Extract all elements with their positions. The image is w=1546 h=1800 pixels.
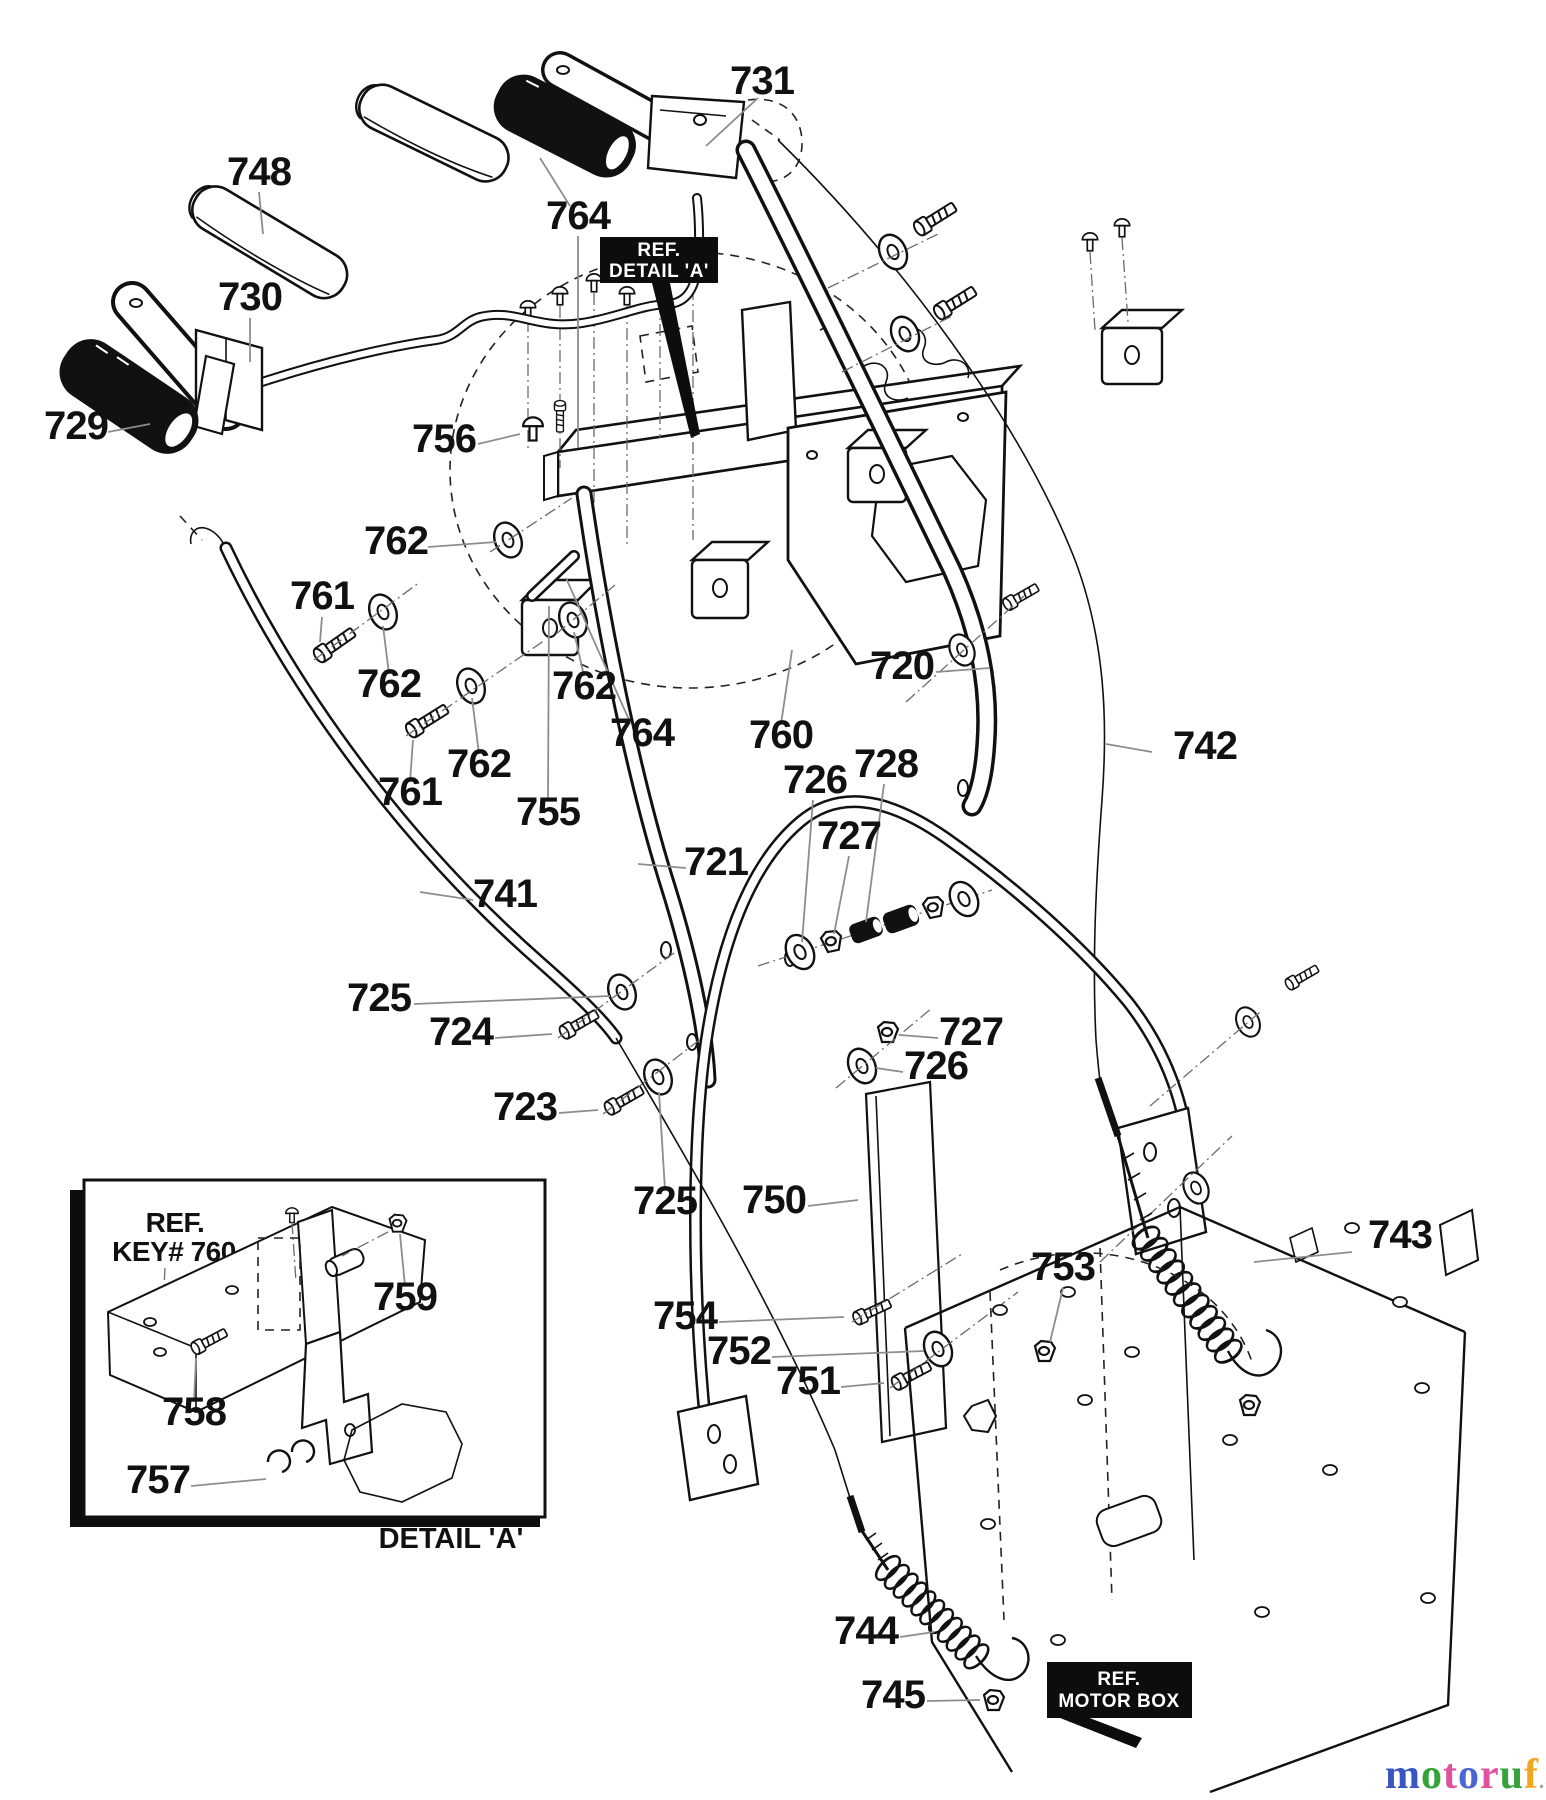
logo-letter-m: m: [1385, 1752, 1421, 1798]
callout-721: 721: [684, 840, 749, 884]
callout-743: 743: [1368, 1213, 1432, 1257]
callout-745: 745: [861, 1673, 926, 1717]
mounting-plate-assembly: [520, 219, 1182, 664]
callout-726-rt: 726: [904, 1044, 968, 1088]
logo-suffix-de: .de: [1539, 1771, 1546, 1793]
lower-fasteners: [851, 1082, 1055, 1442]
callout-760: 760: [749, 713, 813, 757]
logo-letter-u: u: [1500, 1752, 1524, 1798]
ref-motor-box-line1: REF.: [1097, 1669, 1140, 1690]
callout-762-d: 762: [552, 664, 616, 708]
callout-728: 728: [854, 742, 919, 786]
ref-detail-a-box: REF. DETAIL 'A': [600, 237, 718, 438]
exploded-parts-diagram: REF. DETAIL 'A' REF. MOTOR BOX REF. KEY#…: [0, 0, 1546, 1800]
callout-727-up: 727: [817, 814, 881, 858]
detail-a-caption: DETAIL 'A': [379, 1523, 524, 1555]
callout-750: 750: [742, 1178, 806, 1222]
logo-letter-o2: o: [1458, 1752, 1480, 1798]
logo-letter-t: t: [1443, 1752, 1458, 1798]
callout-752: 752: [707, 1329, 771, 1373]
callout-757: 757: [126, 1458, 190, 1502]
callout-764-low: 764: [610, 711, 676, 755]
carriage-bolt-756: [523, 417, 543, 440]
callout-755: 755: [516, 790, 581, 834]
ref-detail-a-line1: REF.: [637, 240, 680, 261]
callout-756: 756: [412, 417, 476, 461]
callout-759: 759: [373, 1275, 437, 1319]
callout-725-up: 725: [347, 976, 412, 1020]
callout-751: 751: [776, 1359, 841, 1403]
mid-fasteners: [557, 950, 702, 1117]
spacer-stack: [758, 877, 992, 974]
ref-motor-box: REF. MOTOR BOX: [1047, 1662, 1192, 1748]
u-bracket-far-right: [1102, 310, 1182, 384]
callout-725-low: 725: [633, 1179, 698, 1223]
ref-detail-a-line2: DETAIL 'A': [609, 261, 709, 282]
grip-shell-764-cover: [349, 76, 516, 189]
callout-729: 729: [44, 404, 108, 448]
callout-762-a: 762: [364, 519, 428, 563]
callout-761-a: 761: [290, 574, 355, 618]
callout-723: 723: [493, 1085, 557, 1129]
motoruf-logo: motoruf.de: [1385, 1752, 1546, 1798]
callout-724: 724: [429, 1010, 495, 1054]
callout-753: 753: [1031, 1245, 1095, 1289]
callout-761-b: 761: [378, 770, 443, 814]
callout-731: 731: [730, 59, 795, 103]
callout-762-b: 762: [357, 662, 421, 706]
callout-762-c: 762: [447, 742, 511, 786]
logo-letter-o1: o: [1421, 1752, 1443, 1798]
tube-721: [584, 494, 708, 1080]
ref-motor-box-line2: MOTOR BOX: [1058, 1691, 1179, 1712]
callout-720: 720: [870, 644, 934, 688]
motoruf-watermark: motoruf.de: [1385, 1752, 1546, 1798]
callout-744: 744: [834, 1609, 900, 1653]
parts-diagram-page: REF. DETAIL 'A' REF. MOTOR BOX REF. KEY#…: [0, 0, 1546, 1800]
callout-764-top: 764: [546, 194, 612, 238]
callout-742: 742: [1173, 724, 1237, 768]
hex-bolt-756b: [554, 401, 565, 432]
callout-748: 748: [227, 150, 292, 194]
callout-758: 758: [162, 1390, 227, 1434]
callout-741: 741: [473, 872, 538, 916]
logo-letter-f: f: [1524, 1752, 1539, 1798]
callout-730: 730: [218, 275, 282, 319]
inset-ref-line1: REF.: [146, 1207, 205, 1238]
u-bracket-center: [692, 542, 768, 618]
logo-letter-r: r: [1480, 1752, 1500, 1798]
callout-726-up: 726: [783, 758, 847, 802]
